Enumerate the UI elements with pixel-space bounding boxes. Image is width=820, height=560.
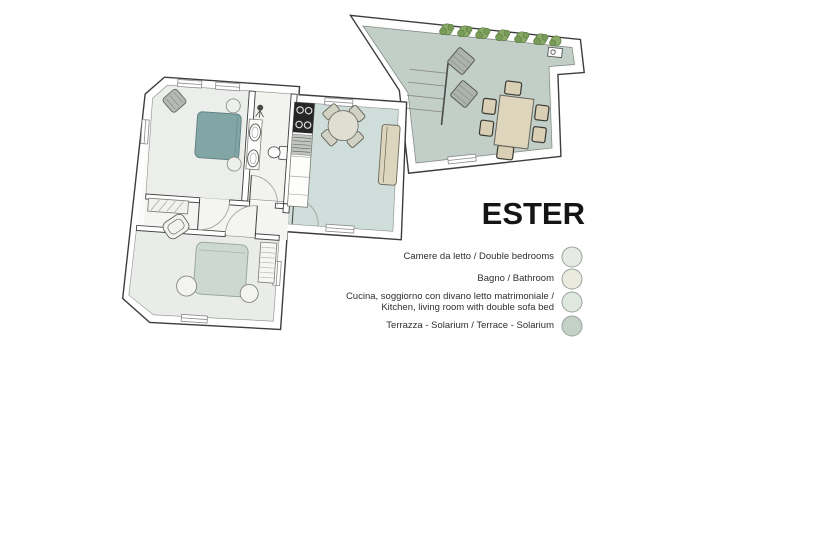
legend-swatch-kitchen-living [561, 291, 583, 313]
legend-item-bathroom: Bagno / Bathroom [346, 268, 583, 289]
chair [479, 120, 494, 136]
nightstand [226, 98, 241, 113]
dining-table [494, 95, 534, 149]
legend-swatch-bathroom [561, 268, 583, 290]
chair [534, 105, 549, 121]
chair [504, 81, 521, 96]
legend-label: Bagno / Bathroom [477, 273, 554, 284]
hallway-wardrobe [148, 198, 189, 214]
radiator-wardrobe [258, 242, 277, 283]
legend-item-terrace: Terrazza - Solarium / Terrace - Solarium [346, 315, 583, 336]
legend-swatch-bedrooms [561, 246, 583, 268]
sofa-bed [378, 124, 400, 185]
nightstand [227, 157, 242, 172]
legend-item-kitchen-living: Cucina, soggiorno con divano letto matri… [346, 290, 583, 314]
page-title: ESTER [482, 196, 585, 232]
legend-swatch-terrace [561, 315, 583, 337]
chair [532, 126, 547, 142]
terrace-fixture [548, 47, 563, 57]
legend: Camere da letto / Double bedrooms Bagno … [346, 246, 583, 336]
legend-item-bedrooms: Camere da letto / Double bedrooms [346, 246, 583, 267]
floor-plan-page: ESTER Camere da letto / Double bedrooms … [0, 0, 820, 560]
stove [293, 102, 315, 133]
chair [496, 145, 513, 160]
toilet [268, 146, 281, 158]
chair [482, 98, 497, 114]
legend-label: Cucina, soggiorno con divano letto matri… [346, 291, 554, 313]
legend-label: Terrazza - Solarium / Terrace - Solarium [386, 320, 554, 331]
legend-label: Camere da letto / Double bedrooms [404, 251, 555, 262]
